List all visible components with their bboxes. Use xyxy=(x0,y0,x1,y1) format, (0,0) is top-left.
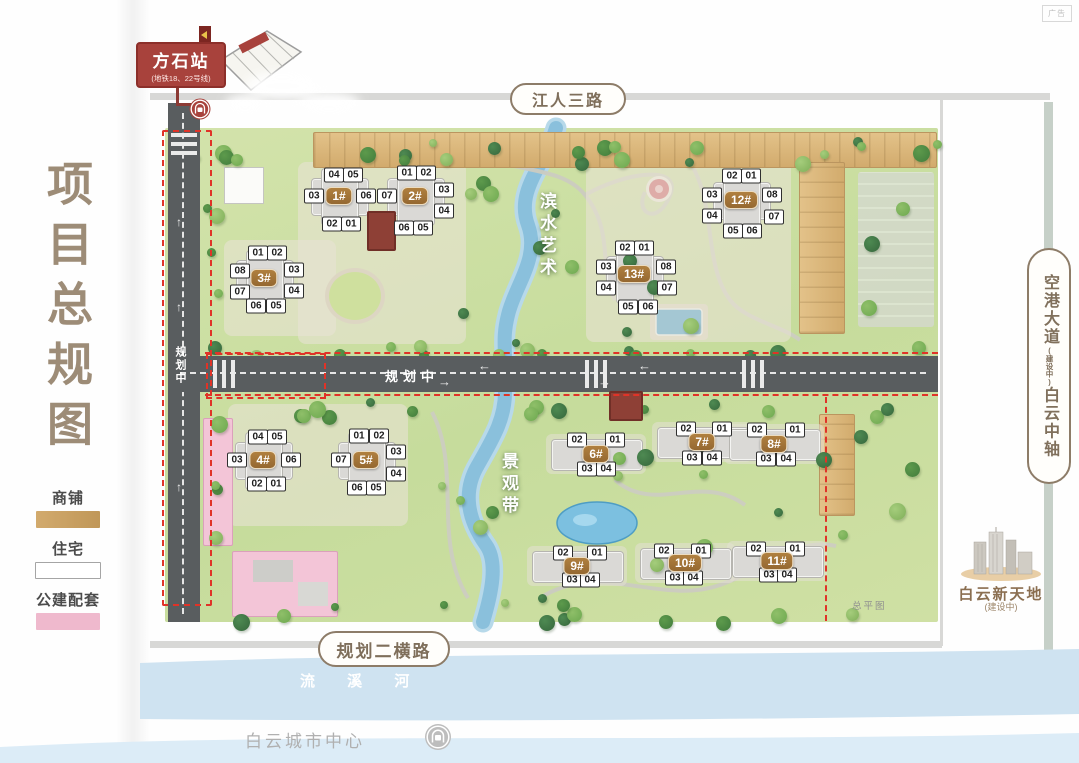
crosswalk xyxy=(213,360,239,388)
tree xyxy=(440,601,448,609)
cloud xyxy=(298,92,360,114)
traffic-arrow: ← xyxy=(478,358,491,373)
unit-label: 01 xyxy=(605,433,625,448)
unit-label: 01 xyxy=(341,217,361,232)
road-pill-east: 空港大道(建设中)白云中轴 xyxy=(1027,248,1071,484)
road-center-label: 规划中 xyxy=(372,366,452,385)
metro-icon-gray xyxy=(424,723,452,751)
unit-label: 01 xyxy=(712,422,732,437)
tree xyxy=(483,186,499,202)
tree xyxy=(774,508,783,517)
building-number: 4# xyxy=(249,451,276,469)
building-number: 2# xyxy=(401,187,428,205)
building-number: 3# xyxy=(250,269,277,287)
tree xyxy=(211,416,228,433)
tree xyxy=(659,615,673,629)
tree xyxy=(637,449,654,466)
pool-south xyxy=(557,502,637,544)
tree xyxy=(609,141,621,153)
unit-label: 06 xyxy=(394,221,414,236)
unit-label: 04 xyxy=(434,204,454,219)
building-number: 11# xyxy=(760,552,793,570)
unit-label: 04 xyxy=(683,571,703,586)
unit-label: 02 xyxy=(267,246,287,261)
tree xyxy=(214,289,223,298)
unit-label: 04 xyxy=(596,281,616,296)
white-building xyxy=(224,167,264,204)
traffic-arrow: ↑ xyxy=(176,215,182,229)
unit-label: 05 xyxy=(618,300,638,315)
unit-label: 06 xyxy=(638,300,658,315)
unit-label: 08 xyxy=(762,188,782,203)
crosswalk xyxy=(171,133,197,155)
unit-label: 05 xyxy=(413,221,433,236)
tree xyxy=(539,615,555,631)
unit-label: 02 xyxy=(722,169,742,184)
entrance-gate-north xyxy=(367,211,396,251)
tree xyxy=(838,530,848,540)
tree xyxy=(913,145,930,162)
unit-label: 02 xyxy=(322,217,342,232)
tree xyxy=(501,599,509,607)
tree xyxy=(683,318,699,334)
tree xyxy=(699,470,708,479)
tree xyxy=(231,154,243,166)
tree xyxy=(438,482,446,490)
unit-label: 01 xyxy=(785,423,805,438)
unit-label: 07 xyxy=(377,189,397,204)
tree xyxy=(795,156,811,172)
unit-label: 06 xyxy=(356,189,376,204)
traffic-arrow: → xyxy=(598,374,611,389)
commercial-block-east xyxy=(799,162,845,334)
tree xyxy=(414,340,427,353)
tree xyxy=(567,607,582,622)
public-facility-block xyxy=(232,551,338,617)
building-number: 1# xyxy=(325,187,352,205)
unit-label: 04 xyxy=(284,284,304,299)
unit-label: 04 xyxy=(776,452,796,467)
tree xyxy=(429,139,437,147)
unit-label: 03 xyxy=(577,462,597,477)
tree xyxy=(458,308,469,319)
tree xyxy=(233,614,250,631)
unit-label: 01 xyxy=(349,429,369,444)
landscape-belt-label: 景观带 xyxy=(496,452,521,518)
tree xyxy=(456,496,465,505)
tree xyxy=(933,140,942,149)
unit-label: 08 xyxy=(230,264,250,279)
tree xyxy=(465,188,477,200)
unit-label: 05 xyxy=(366,481,386,496)
facility-roof xyxy=(253,560,293,582)
plan-note: 总平图 xyxy=(852,598,887,612)
sign-tab-arrow-icon xyxy=(201,31,207,39)
tree xyxy=(896,202,910,216)
tree xyxy=(771,608,787,624)
waterfront-art-label: 滨水艺术 xyxy=(534,192,559,280)
building-number: 7# xyxy=(688,433,715,451)
tree xyxy=(716,616,731,631)
unit-label: 04 xyxy=(386,467,406,482)
metro-icon-red xyxy=(189,98,211,120)
unit-label: 03 xyxy=(665,571,685,586)
tree xyxy=(551,403,567,419)
tree xyxy=(854,430,868,444)
unit-label: 04 xyxy=(702,451,722,466)
unit-label: 06 xyxy=(742,224,762,239)
unit-label: 04 xyxy=(324,168,344,183)
unit-label: 04 xyxy=(702,209,722,224)
building-number: 8# xyxy=(760,435,787,453)
tree xyxy=(309,401,326,418)
road-east-sub: (建设中) xyxy=(1045,346,1054,387)
tree xyxy=(366,398,375,407)
road-west-label: 规划中 xyxy=(172,346,188,385)
unit-label: 05 xyxy=(343,168,363,183)
unit-label: 03 xyxy=(304,189,324,204)
tree xyxy=(690,141,704,155)
road-center xyxy=(168,356,938,392)
tree xyxy=(524,407,538,421)
tree xyxy=(685,158,694,167)
building-number: 5# xyxy=(352,451,379,469)
tree xyxy=(473,520,488,535)
building-number: 12# xyxy=(724,191,758,209)
station-name: 方石站 xyxy=(138,47,224,72)
tree xyxy=(208,341,222,355)
unit-label: 01 xyxy=(248,246,268,261)
city-center-label: 白云城市中心 xyxy=(245,727,365,752)
unit-label: 02 xyxy=(615,241,635,256)
tree xyxy=(622,327,632,337)
tree xyxy=(209,531,223,545)
unit-label: 03 xyxy=(227,453,247,468)
road-east-name: 空港大道 xyxy=(1041,274,1058,346)
unit-label: 02 xyxy=(416,166,436,181)
road-pill-south: 规划二横路 xyxy=(318,631,450,667)
tree xyxy=(331,603,339,611)
unit-label: 01 xyxy=(397,166,417,181)
unit-label: 05 xyxy=(267,430,287,445)
building-number: 6# xyxy=(582,445,609,463)
unit-label: 05 xyxy=(723,224,743,239)
tree xyxy=(557,599,570,612)
tree xyxy=(407,406,418,417)
unit-label: 01 xyxy=(587,546,607,561)
crosswalk xyxy=(742,360,768,388)
tree xyxy=(614,152,630,168)
unit-label: 07 xyxy=(331,453,351,468)
unit-label: 01 xyxy=(266,477,286,492)
unit-label: 01 xyxy=(741,169,761,184)
tree xyxy=(209,208,225,224)
tree xyxy=(572,146,585,159)
tree xyxy=(912,341,926,355)
tree xyxy=(575,157,589,171)
tree xyxy=(399,155,410,166)
building-number: 10# xyxy=(668,554,702,572)
unit-label: 06 xyxy=(281,453,301,468)
road-east-name2: 白云中轴 xyxy=(1041,386,1058,458)
subway-station-sign: 方石站 (地铁18、22号线) xyxy=(136,42,226,88)
unit-label: 07 xyxy=(657,281,677,296)
unit-label: 06 xyxy=(246,299,266,314)
tree xyxy=(512,339,520,347)
tree xyxy=(488,142,501,155)
lane-divider xyxy=(180,372,926,374)
unit-label: 03 xyxy=(284,263,304,278)
unit-label: 03 xyxy=(682,451,702,466)
traffic-arrow: ← xyxy=(638,358,651,373)
fountain-circle xyxy=(325,268,385,324)
unit-label: 04 xyxy=(248,430,268,445)
facility-roof xyxy=(298,582,328,606)
tree xyxy=(820,150,829,159)
unit-label: 04 xyxy=(596,462,616,477)
unit-label: 07 xyxy=(764,210,784,225)
tree xyxy=(386,342,396,352)
traffic-arrow: ↑ xyxy=(176,300,182,314)
tree xyxy=(650,558,664,572)
road-pill-north: 江人三路 xyxy=(510,83,626,115)
tree xyxy=(277,609,291,623)
unit-label: 03 xyxy=(756,452,776,467)
tree xyxy=(861,300,877,316)
master-plan-poster: 项目总规图 商铺住宅公建配套 xyxy=(0,0,1079,763)
building-number: 13# xyxy=(617,265,651,283)
unit-label: 03 xyxy=(386,445,406,460)
cloud xyxy=(225,95,265,113)
tree xyxy=(538,594,547,603)
unit-label: 06 xyxy=(347,481,367,496)
entrance-gate-south xyxy=(609,391,643,421)
tree xyxy=(440,153,453,166)
tree xyxy=(709,399,720,410)
tree xyxy=(565,260,579,274)
unit-label: 07 xyxy=(230,285,250,300)
tree xyxy=(881,403,894,416)
tree xyxy=(889,503,906,520)
unit-label: 01 xyxy=(634,241,654,256)
unit-label: 08 xyxy=(656,260,676,275)
tree xyxy=(857,142,866,151)
unit-label: 05 xyxy=(266,299,286,314)
tree xyxy=(207,248,216,257)
river-name: 流 溪 河 xyxy=(300,670,450,691)
building-number: 9# xyxy=(563,557,590,575)
unit-label: 02 xyxy=(369,429,389,444)
ad-badge: 广告 xyxy=(1042,5,1072,22)
traffic-arrow: ↑ xyxy=(176,480,182,494)
unit-label: 03 xyxy=(702,188,722,203)
tree xyxy=(864,236,880,252)
unit-label: 02 xyxy=(247,477,267,492)
tree xyxy=(360,147,376,163)
tree xyxy=(816,452,832,468)
tree xyxy=(211,481,220,490)
station-lines: (地铁18、22号线) xyxy=(138,73,224,84)
unit-label: 03 xyxy=(434,183,454,198)
tree xyxy=(762,405,775,418)
unit-label: 03 xyxy=(596,260,616,275)
tree xyxy=(905,462,920,477)
